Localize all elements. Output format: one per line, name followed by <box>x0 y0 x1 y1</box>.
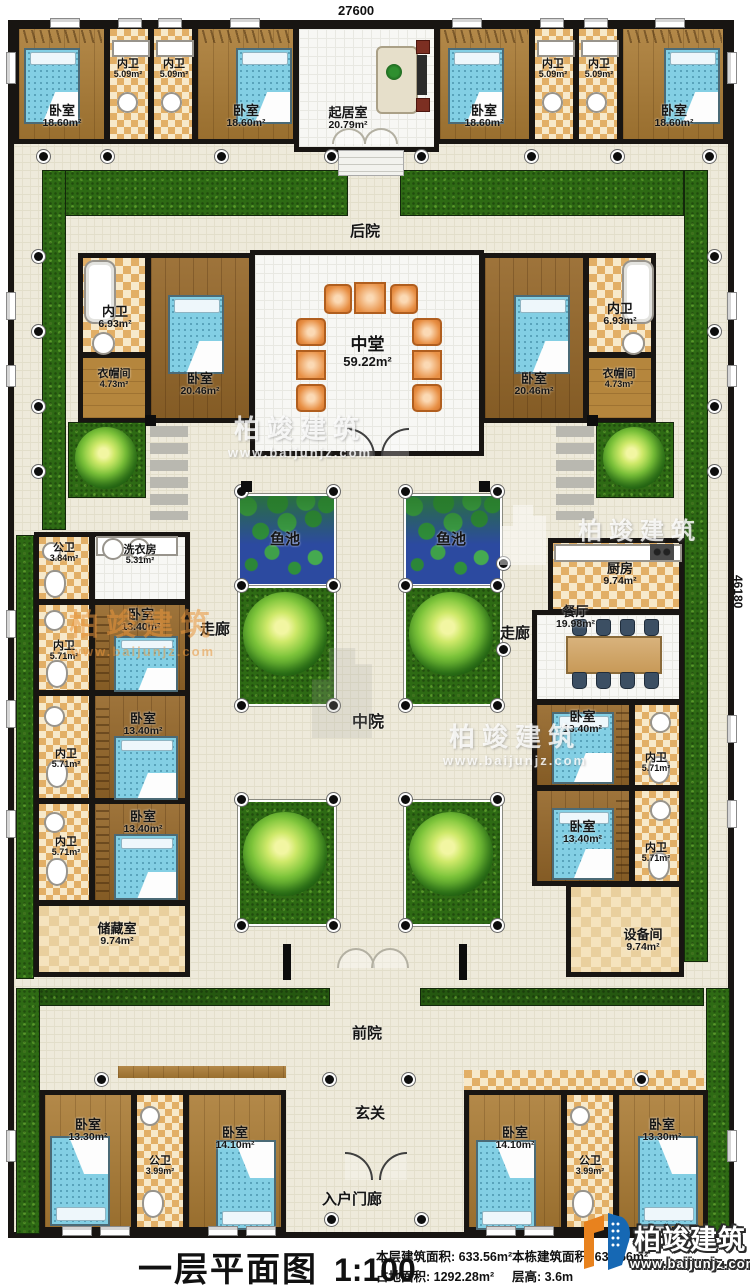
wardrobe <box>624 30 722 43</box>
stove <box>650 544 674 560</box>
bed <box>514 295 570 374</box>
window <box>6 1130 16 1162</box>
label-bedroom-bl1: 卧室13.30m² <box>44 1118 132 1144</box>
label-bedroom-mr: 卧室20.46m² <box>489 372 579 398</box>
column-dot <box>491 485 504 498</box>
window <box>208 1226 238 1236</box>
column-dot <box>491 793 504 806</box>
post <box>479 481 490 492</box>
window <box>246 1226 276 1236</box>
label-bedroom-r1: 卧室13.40m² <box>535 710 630 736</box>
hall-table <box>354 282 386 314</box>
column-dot <box>325 150 338 163</box>
window <box>230 18 260 28</box>
label-bedroom-ml: 卧室20.46m² <box>155 372 245 398</box>
tree <box>409 812 493 896</box>
window <box>6 52 16 84</box>
wardrobe <box>199 30 292 43</box>
wardrobe <box>20 30 102 43</box>
column-dot <box>399 793 412 806</box>
hall-chair <box>390 284 418 314</box>
column-dot <box>235 793 248 806</box>
porch-steps <box>338 150 404 176</box>
toilet <box>46 660 68 688</box>
dining-table <box>566 636 662 674</box>
label-cloak-l: 衣帽间4.73m² <box>82 368 146 390</box>
column-dot <box>491 579 504 592</box>
bed <box>50 1136 110 1226</box>
side-grass-left <box>42 170 66 530</box>
dining-chair <box>596 672 611 689</box>
column-dot <box>235 919 248 932</box>
toilet <box>142 1190 164 1218</box>
window <box>727 800 737 828</box>
window <box>452 18 482 28</box>
label-bedroom-br2: 卧室13.30m² <box>618 1118 706 1144</box>
sink <box>542 92 563 113</box>
zone-backyard: 后院 <box>350 220 380 241</box>
zone-fish-pond-right: 鱼池 <box>436 528 466 549</box>
label-bedroom-tl1: 卧室18.60m² <box>16 104 108 130</box>
column-dot <box>635 1073 648 1086</box>
bed <box>638 1136 698 1226</box>
stat-floor-area: 本层建筑面积: 633.56m² <box>376 1246 512 1265</box>
label-kitchen: 厨房9.74m² <box>575 562 665 588</box>
label-bedroom-l3: 卧室13.40m² <box>98 810 188 836</box>
vanity <box>581 40 619 57</box>
label-storage: 储藏室9.74m² <box>62 922 172 948</box>
label-bedroom-tr2: 卧室18.60m² <box>622 104 726 130</box>
label-bath-tr2: 内卫5.09m² <box>575 58 623 80</box>
column-dot <box>32 250 45 263</box>
sink <box>140 1106 160 1126</box>
gate-wall <box>283 944 291 980</box>
window <box>6 365 16 387</box>
window <box>6 700 16 728</box>
side-table <box>416 98 430 112</box>
dimension-height: 46180 <box>731 575 745 608</box>
sink <box>44 812 65 833</box>
bed <box>114 736 178 800</box>
label-bath-tl1: 内卫5.09m² <box>104 58 152 80</box>
column-dot <box>399 699 412 712</box>
window <box>6 292 16 320</box>
column-dot <box>327 793 340 806</box>
column-dot <box>32 325 45 338</box>
corridor-tiles <box>464 1070 704 1090</box>
stat-land-area: 占地面积: 1292.28m² <box>376 1266 494 1285</box>
label-equipment: 设备间9.74m² <box>588 928 698 954</box>
label-bedroom-br1: 卧室14.10m² <box>468 1126 562 1152</box>
hall-chair <box>412 318 442 346</box>
zone-fish-pond-left: 鱼池 <box>270 528 300 549</box>
label-public-bath-br: 公卫3.99m² <box>564 1155 616 1177</box>
label-bath-l3: 内卫5.71m² <box>38 836 94 858</box>
column-dot <box>325 1213 338 1226</box>
zone-entry-hall: 玄关 <box>355 1102 385 1123</box>
label-bath-mr: 内卫6.93m² <box>590 302 650 328</box>
label-bedroom-bl2: 卧室14.10m² <box>188 1126 282 1152</box>
vanity <box>112 40 150 57</box>
plant <box>386 64 402 80</box>
hall-table <box>412 350 442 380</box>
column-dot <box>215 150 228 163</box>
window <box>727 292 737 320</box>
label-bedroom-tr1: 卧室18.60m² <box>436 104 532 130</box>
brand-name: 柏竣建筑 <box>634 1218 746 1257</box>
label-bath-l1: 内卫5.71m² <box>36 640 92 662</box>
label-bath-r1: 内卫5.71m² <box>628 752 684 774</box>
stat-floor-height: 层高: 3.6m <box>512 1266 573 1285</box>
label-middle-hall: 中堂59.22m² <box>320 336 415 369</box>
label-bath-r2: 内卫5.71m² <box>628 842 684 864</box>
sink <box>44 610 65 631</box>
front-grass-right <box>706 988 730 1234</box>
window <box>727 715 737 743</box>
hall-chair <box>296 384 326 412</box>
column-dot <box>32 465 45 478</box>
dining-chair <box>572 672 587 689</box>
tree <box>75 427 137 489</box>
brand-url: www.baijunjz.com <box>630 1256 750 1271</box>
label-living: 起居室20.79m² <box>300 106 396 132</box>
column-dot <box>327 485 340 498</box>
label-bath-ml: 内卫6.93m² <box>86 305 144 331</box>
wardrobe <box>441 30 528 43</box>
plan-title: 一层平面图 <box>138 1242 318 1285</box>
column-dot <box>402 1073 415 1086</box>
label-bedroom-r2: 卧室13.40m² <box>535 820 630 846</box>
front-grass-left <box>16 988 40 1234</box>
column-dot <box>491 919 504 932</box>
column-dot <box>525 150 538 163</box>
column-dot <box>399 919 412 932</box>
sink <box>161 92 182 113</box>
front-hedge <box>28 988 330 1006</box>
dimension-width: 27600 <box>338 3 374 18</box>
column-dot <box>101 150 114 163</box>
column-dot <box>491 699 504 712</box>
window <box>655 18 685 28</box>
zone-front-yard: 前院 <box>352 1022 382 1043</box>
post <box>145 415 156 426</box>
post <box>241 481 252 492</box>
sink <box>44 706 65 727</box>
side-table <box>416 40 430 54</box>
window <box>62 1226 92 1236</box>
column-dot <box>708 400 721 413</box>
pergola-strip <box>118 1066 286 1078</box>
zone-entry-porch: 入户门廊 <box>322 1188 382 1209</box>
toilet <box>44 570 66 598</box>
sink <box>117 92 138 113</box>
window <box>6 810 16 838</box>
window <box>524 1226 554 1236</box>
column-dot <box>95 1073 108 1086</box>
column-dot <box>708 465 721 478</box>
column-dot <box>611 150 624 163</box>
sink <box>622 332 645 355</box>
label-bath-tr1: 内卫5.09m² <box>529 58 577 80</box>
tree <box>243 592 327 676</box>
window <box>540 18 564 28</box>
side-grass-left-lower <box>16 535 34 979</box>
toilet <box>46 858 68 886</box>
column-dot <box>32 400 45 413</box>
side-grass-right <box>684 170 708 962</box>
column-dot <box>415 1213 428 1226</box>
label-laundry: 洗衣房5.31m² <box>96 544 184 566</box>
bed <box>114 636 178 692</box>
tree <box>243 812 327 896</box>
dining-chair <box>620 672 635 689</box>
bed <box>476 1140 536 1230</box>
column-dot <box>399 485 412 498</box>
stepping-stones <box>556 426 594 520</box>
window <box>727 1130 737 1162</box>
hall-chair <box>412 384 442 412</box>
column-dot <box>235 699 248 712</box>
front-hedge <box>420 988 704 1006</box>
label-bath-l2: 内卫5.71m² <box>38 748 94 770</box>
window <box>486 1226 516 1236</box>
window <box>6 610 16 638</box>
column-dot <box>497 643 510 656</box>
sink <box>650 712 671 733</box>
column-dot <box>703 150 716 163</box>
zone-corridor-right: 走廊 <box>500 622 530 643</box>
label-cloak-r: 衣帽间4.73m² <box>586 368 652 390</box>
backyard-grass <box>64 170 348 216</box>
column-dot <box>327 919 340 932</box>
column-dot <box>399 579 412 592</box>
floor-plan-canvas: 27600 46180 <box>0 0 750 1285</box>
window <box>584 18 608 28</box>
tree <box>603 427 665 489</box>
sink <box>586 92 607 113</box>
dining-chair <box>644 619 659 636</box>
post <box>587 415 598 426</box>
tree <box>409 592 493 676</box>
window <box>118 18 142 28</box>
label-bedroom-l2: 卧室13.40m² <box>98 712 188 738</box>
window <box>50 18 80 28</box>
bed <box>114 834 178 900</box>
sink <box>570 1106 590 1126</box>
window <box>100 1226 130 1236</box>
label-public-bath-l: 公卫3.84m² <box>38 542 90 564</box>
column-dot <box>415 150 428 163</box>
hall-chair <box>324 284 352 314</box>
gate-wall <box>459 944 467 980</box>
window <box>727 52 737 84</box>
label-bedroom-tl2: 卧室18.60m² <box>196 104 296 130</box>
stepping-stones <box>150 426 188 520</box>
brand-logo-icon <box>580 1210 636 1274</box>
label-bedroom-l1: 卧室13.40m² <box>96 608 186 634</box>
vanity <box>537 40 575 57</box>
column-dot <box>323 1073 336 1086</box>
column-dot <box>708 250 721 263</box>
sink <box>92 332 115 355</box>
label-bath-tl2: 内卫5.09m² <box>150 58 198 80</box>
zone-corridor-left: 走廊 <box>200 618 230 639</box>
column-dot <box>327 579 340 592</box>
column-dot <box>37 150 50 163</box>
tv-cabinet <box>417 55 427 95</box>
column-dot <box>708 325 721 338</box>
bed <box>216 1140 276 1230</box>
backyard-grass <box>400 170 684 216</box>
sofa <box>376 46 418 114</box>
vanity <box>156 40 194 57</box>
bed <box>168 295 224 374</box>
dining-chair <box>644 672 659 689</box>
sink <box>650 800 671 821</box>
window <box>158 18 182 28</box>
label-dining: 餐厅19.98m² <box>528 605 623 631</box>
column-dot <box>235 579 248 592</box>
room-bath-l2 <box>34 691 94 803</box>
window <box>727 365 737 387</box>
label-public-bath-bl: 公卫3.99m² <box>134 1155 186 1177</box>
